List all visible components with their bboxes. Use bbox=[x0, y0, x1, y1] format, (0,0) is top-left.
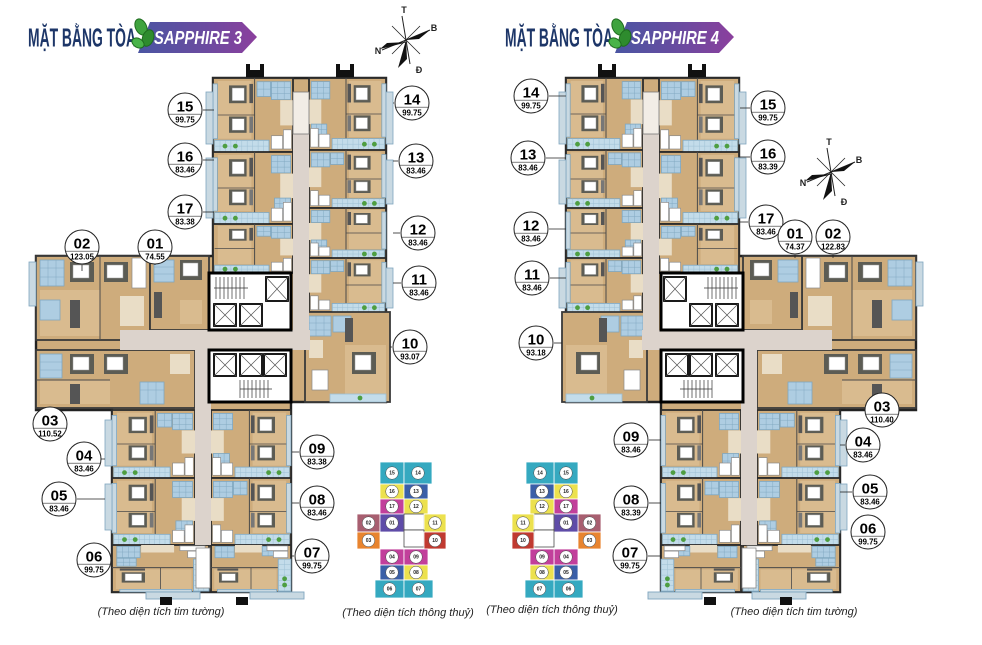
svg-text:17: 17 bbox=[177, 201, 194, 218]
svg-text:10: 10 bbox=[520, 538, 526, 544]
svg-text:05: 05 bbox=[563, 570, 569, 576]
svg-text:83.38: 83.38 bbox=[175, 218, 195, 227]
svg-text:14: 14 bbox=[404, 92, 421, 109]
svg-text:83.46: 83.46 bbox=[408, 239, 428, 248]
svg-text:16: 16 bbox=[177, 149, 194, 166]
svg-text:03: 03 bbox=[366, 538, 372, 544]
svg-text:T: T bbox=[826, 137, 832, 147]
svg-text:99.75: 99.75 bbox=[521, 102, 541, 111]
svg-text:01: 01 bbox=[389, 521, 395, 527]
svg-text:123.05: 123.05 bbox=[70, 253, 95, 262]
svg-text:03: 03 bbox=[587, 538, 593, 544]
svg-text:17: 17 bbox=[758, 211, 775, 228]
svg-text:15: 15 bbox=[177, 99, 194, 116]
svg-text:83.46: 83.46 bbox=[175, 166, 195, 175]
svg-text:01: 01 bbox=[147, 236, 164, 253]
svg-text:83.46: 83.46 bbox=[621, 446, 641, 455]
svg-text:MẶT BẰNG TÒA: MẶT BẰNG TÒA bbox=[505, 23, 613, 53]
svg-text:83.46: 83.46 bbox=[409, 289, 429, 298]
svg-text:15: 15 bbox=[389, 471, 395, 477]
svg-text:83.46: 83.46 bbox=[756, 228, 776, 237]
svg-text:02: 02 bbox=[587, 521, 593, 527]
svg-text:09: 09 bbox=[309, 441, 326, 458]
svg-text:99.75: 99.75 bbox=[402, 109, 422, 118]
svg-text:12: 12 bbox=[539, 504, 545, 510]
svg-text:12: 12 bbox=[410, 222, 427, 239]
svg-text:83.46: 83.46 bbox=[522, 284, 542, 293]
svg-text:07: 07 bbox=[537, 587, 543, 593]
svg-text:15: 15 bbox=[563, 471, 569, 477]
svg-text:05: 05 bbox=[389, 570, 395, 576]
svg-text:SAPPHIRE 3: SAPPHIRE 3 bbox=[154, 28, 242, 48]
svg-text:83.46: 83.46 bbox=[860, 498, 880, 507]
svg-text:05: 05 bbox=[51, 488, 68, 505]
svg-text:122.83: 122.83 bbox=[821, 243, 846, 252]
svg-text:83.46: 83.46 bbox=[49, 505, 69, 514]
svg-text:14: 14 bbox=[415, 471, 421, 477]
svg-text:Đ: Đ bbox=[416, 65, 423, 75]
svg-text:13: 13 bbox=[413, 489, 419, 495]
svg-text:B: B bbox=[431, 23, 438, 33]
svg-text:14: 14 bbox=[523, 85, 540, 102]
svg-text:99.75: 99.75 bbox=[302, 562, 322, 571]
svg-text:N: N bbox=[375, 46, 382, 56]
svg-text:(Theo diện tích tim tường): (Theo diện tích tim tường) bbox=[98, 606, 225, 618]
svg-text:02: 02 bbox=[825, 226, 842, 243]
svg-text:12: 12 bbox=[413, 504, 419, 510]
svg-text:02: 02 bbox=[74, 236, 91, 253]
svg-text:83.46: 83.46 bbox=[307, 509, 327, 518]
svg-text:93.07: 93.07 bbox=[400, 353, 420, 362]
svg-text:14: 14 bbox=[537, 471, 543, 477]
svg-text:99.75: 99.75 bbox=[858, 538, 878, 547]
svg-text:110.52: 110.52 bbox=[38, 430, 62, 439]
svg-text:N: N bbox=[800, 178, 807, 188]
svg-text:(Theo diện tích thông thuỷ): (Theo diện tích thông thuỷ) bbox=[342, 607, 474, 619]
svg-text:08: 08 bbox=[539, 570, 545, 576]
svg-text:04: 04 bbox=[855, 434, 872, 451]
svg-text:06: 06 bbox=[860, 521, 877, 538]
svg-text:99.75: 99.75 bbox=[758, 114, 778, 123]
svg-text:05: 05 bbox=[862, 481, 879, 498]
svg-text:99.75: 99.75 bbox=[84, 566, 104, 575]
svg-text:08: 08 bbox=[309, 492, 326, 509]
svg-text:17: 17 bbox=[563, 504, 569, 510]
svg-text:12: 12 bbox=[523, 218, 540, 235]
svg-text:83.46: 83.46 bbox=[518, 164, 538, 173]
svg-text:Đ: Đ bbox=[841, 197, 848, 207]
svg-text:11: 11 bbox=[432, 521, 438, 527]
svg-text:(Theo diện tích tim tường): (Theo diện tích tim tường) bbox=[731, 606, 858, 618]
svg-text:07: 07 bbox=[622, 545, 639, 562]
svg-text:16: 16 bbox=[563, 489, 569, 495]
svg-text:83.46: 83.46 bbox=[521, 235, 541, 244]
svg-text:T: T bbox=[401, 5, 407, 15]
svg-text:83.46: 83.46 bbox=[853, 451, 873, 460]
svg-text:07: 07 bbox=[304, 545, 321, 562]
svg-text:99.75: 99.75 bbox=[175, 116, 195, 125]
svg-text:09: 09 bbox=[539, 555, 545, 561]
svg-text:74.37: 74.37 bbox=[785, 243, 805, 252]
svg-text:74.55: 74.55 bbox=[145, 253, 165, 262]
svg-text:03: 03 bbox=[42, 413, 59, 430]
svg-text:16: 16 bbox=[760, 146, 777, 163]
svg-text:02: 02 bbox=[366, 521, 372, 527]
svg-text:07: 07 bbox=[416, 587, 422, 593]
svg-text:04: 04 bbox=[563, 555, 569, 561]
svg-text:04: 04 bbox=[389, 555, 395, 561]
svg-text:08: 08 bbox=[413, 570, 419, 576]
svg-text:83.46: 83.46 bbox=[74, 465, 94, 474]
svg-text:17: 17 bbox=[389, 504, 395, 510]
svg-text:13: 13 bbox=[539, 489, 545, 495]
svg-text:10: 10 bbox=[402, 336, 419, 353]
svg-text:(Theo diện tích thông thuỷ): (Theo diện tích thông thuỷ) bbox=[486, 604, 618, 616]
svg-text:15: 15 bbox=[760, 97, 777, 114]
svg-text:83.46: 83.46 bbox=[406, 167, 426, 176]
svg-text:93.18: 93.18 bbox=[526, 349, 546, 358]
svg-text:99.75: 99.75 bbox=[620, 562, 640, 571]
svg-text:01: 01 bbox=[787, 226, 804, 243]
svg-text:11: 11 bbox=[411, 272, 427, 289]
svg-text:110.40: 110.40 bbox=[870, 416, 894, 425]
svg-text:10: 10 bbox=[528, 332, 545, 349]
svg-text:83.39: 83.39 bbox=[758, 163, 778, 172]
svg-text:01: 01 bbox=[563, 521, 569, 527]
svg-text:11: 11 bbox=[520, 521, 526, 527]
svg-text:09: 09 bbox=[413, 555, 419, 561]
svg-text:08: 08 bbox=[623, 492, 640, 509]
svg-text:83.39: 83.39 bbox=[621, 509, 641, 518]
svg-text:B: B bbox=[856, 155, 863, 165]
svg-text:06: 06 bbox=[566, 587, 572, 593]
svg-text:MẶT BẰNG TÒA: MẶT BẰNG TÒA bbox=[28, 23, 136, 53]
svg-text:04: 04 bbox=[76, 448, 93, 465]
svg-text:11: 11 bbox=[524, 267, 540, 284]
svg-text:13: 13 bbox=[520, 147, 537, 164]
svg-text:03: 03 bbox=[874, 399, 891, 416]
svg-text:10: 10 bbox=[432, 538, 438, 544]
svg-text:06: 06 bbox=[86, 549, 103, 566]
svg-text:16: 16 bbox=[389, 489, 395, 495]
svg-text:83.38: 83.38 bbox=[307, 458, 327, 467]
svg-text:09: 09 bbox=[623, 429, 640, 446]
svg-text:06: 06 bbox=[387, 587, 393, 593]
svg-text:SAPPHIRE 4: SAPPHIRE 4 bbox=[631, 28, 719, 48]
svg-text:13: 13 bbox=[408, 150, 425, 167]
